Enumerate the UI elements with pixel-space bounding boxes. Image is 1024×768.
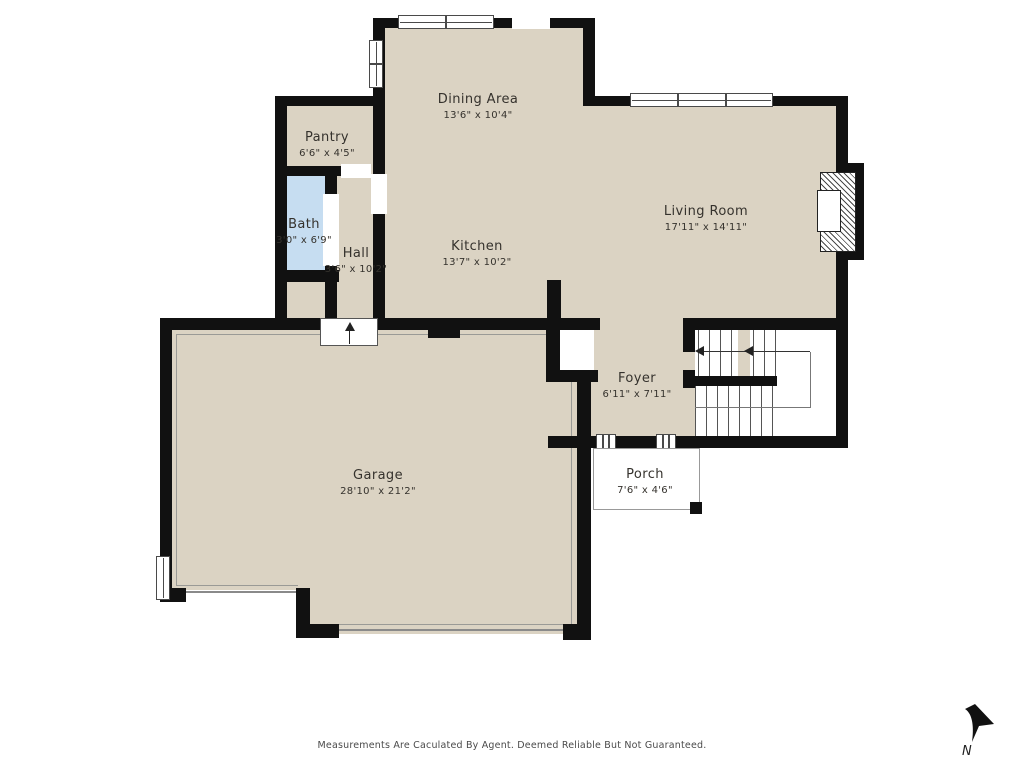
room-dims: 13'7" x 10'2" bbox=[442, 257, 511, 268]
room-dims: 17'11" x 14'11" bbox=[664, 222, 748, 233]
room-label-kitchen: Kitchen 13'7" x 10'2" bbox=[442, 239, 511, 268]
room-name: Living Room bbox=[664, 204, 748, 219]
room-dims: 13'6" x 10'4" bbox=[438, 110, 518, 121]
stair-half-wall bbox=[695, 376, 777, 386]
room-dims: 3'0" x 6'9" bbox=[276, 235, 332, 246]
room-label-hall: Hall 3'6" x 10'2" bbox=[325, 246, 387, 275]
room-label-dining-area: Dining Area 13'6" x 10'4" bbox=[438, 92, 518, 121]
window-mullion bbox=[668, 435, 670, 448]
room-dims: 28'10" x 21'2" bbox=[340, 486, 416, 497]
garage-inner-line bbox=[176, 585, 298, 586]
garage-inner-line bbox=[176, 334, 177, 586]
wall bbox=[577, 372, 591, 640]
pantry-doorway bbox=[341, 164, 371, 178]
wall bbox=[428, 330, 460, 338]
fireplace-firebox bbox=[817, 190, 841, 232]
disclaimer-text: Measurements Are Caculated By Agent. Dee… bbox=[0, 740, 1024, 751]
stair-arrow-icon bbox=[744, 346, 753, 356]
stair-arrow-icon bbox=[695, 346, 704, 356]
room-name: Porch bbox=[617, 467, 673, 482]
wall bbox=[275, 96, 385, 106]
wall bbox=[683, 318, 848, 330]
room-name: Bath bbox=[276, 217, 332, 232]
room-name: Foyer bbox=[602, 371, 671, 386]
window bbox=[630, 93, 773, 107]
step-arrow-stem bbox=[349, 330, 350, 344]
closet bbox=[560, 330, 594, 370]
room-label-porch: Porch 7'6" x 4'6" bbox=[617, 467, 673, 496]
window-mullion bbox=[445, 16, 447, 28]
wall bbox=[683, 370, 695, 388]
room-name: Pantry bbox=[299, 130, 355, 145]
room-label-foyer: Foyer 6'11" x 7'11" bbox=[602, 371, 671, 400]
hall-kitchen-opening bbox=[371, 174, 387, 214]
wall bbox=[683, 318, 695, 352]
stair-treads-lower bbox=[695, 386, 782, 436]
room-label-pantry: Pantry 6'6" x 4'5" bbox=[299, 130, 355, 159]
garage-door-opening bbox=[337, 629, 563, 631]
wall bbox=[275, 96, 287, 322]
garage-entry-step bbox=[320, 318, 378, 346]
room-label-bath: Bath 3'0" x 6'9" bbox=[276, 217, 332, 246]
wall-opening bbox=[512, 17, 550, 29]
room-label-garage: Garage 28'10" x 21'2" bbox=[340, 468, 416, 497]
step-arrow-icon bbox=[345, 322, 355, 331]
garage-door-opening bbox=[186, 591, 296, 593]
room-dims: 3'6" x 10'2" bbox=[325, 264, 387, 275]
entry-sidelight-window bbox=[596, 434, 616, 449]
floor-plan-page: { "plan": { "rooms": [ {"name": "Dining … bbox=[0, 0, 1024, 768]
garage-inner-line bbox=[310, 624, 571, 625]
porch-post bbox=[690, 502, 702, 514]
window bbox=[369, 40, 383, 88]
room-name: Dining Area bbox=[438, 92, 518, 107]
window-mullion bbox=[725, 94, 727, 106]
room-dims: 7'6" x 4'6" bbox=[617, 485, 673, 496]
wall bbox=[303, 624, 339, 638]
room-name: Kitchen bbox=[442, 239, 511, 254]
window-mullion bbox=[677, 94, 679, 106]
room-name: Garage bbox=[340, 468, 416, 483]
stair-direction-line bbox=[700, 351, 810, 352]
window-mullion bbox=[602, 435, 604, 448]
floor-garage bbox=[166, 324, 577, 590]
stair-overhang-line bbox=[810, 352, 811, 407]
window-mullion bbox=[608, 435, 610, 448]
window-mullion bbox=[662, 435, 664, 448]
room-name: Hall bbox=[325, 246, 387, 261]
wall bbox=[583, 18, 595, 106]
floor-garage-lower bbox=[306, 590, 577, 634]
window bbox=[398, 15, 494, 29]
floor-hall-alcove bbox=[287, 280, 325, 322]
wall bbox=[836, 318, 848, 448]
window-glass-line bbox=[632, 100, 771, 101]
room-label-living-room: Living Room 17'11" x 14'11" bbox=[664, 204, 748, 233]
wall bbox=[547, 280, 561, 320]
room-dims: 6'6" x 4'5" bbox=[299, 148, 355, 159]
room-dims: 6'11" x 7'11" bbox=[602, 389, 671, 400]
wall bbox=[548, 436, 848, 448]
window bbox=[156, 556, 170, 600]
stair-overhang-line bbox=[695, 407, 811, 408]
window-mullion bbox=[370, 63, 382, 65]
entry-sidelight-window bbox=[656, 434, 676, 449]
window-glass-line bbox=[163, 558, 164, 598]
